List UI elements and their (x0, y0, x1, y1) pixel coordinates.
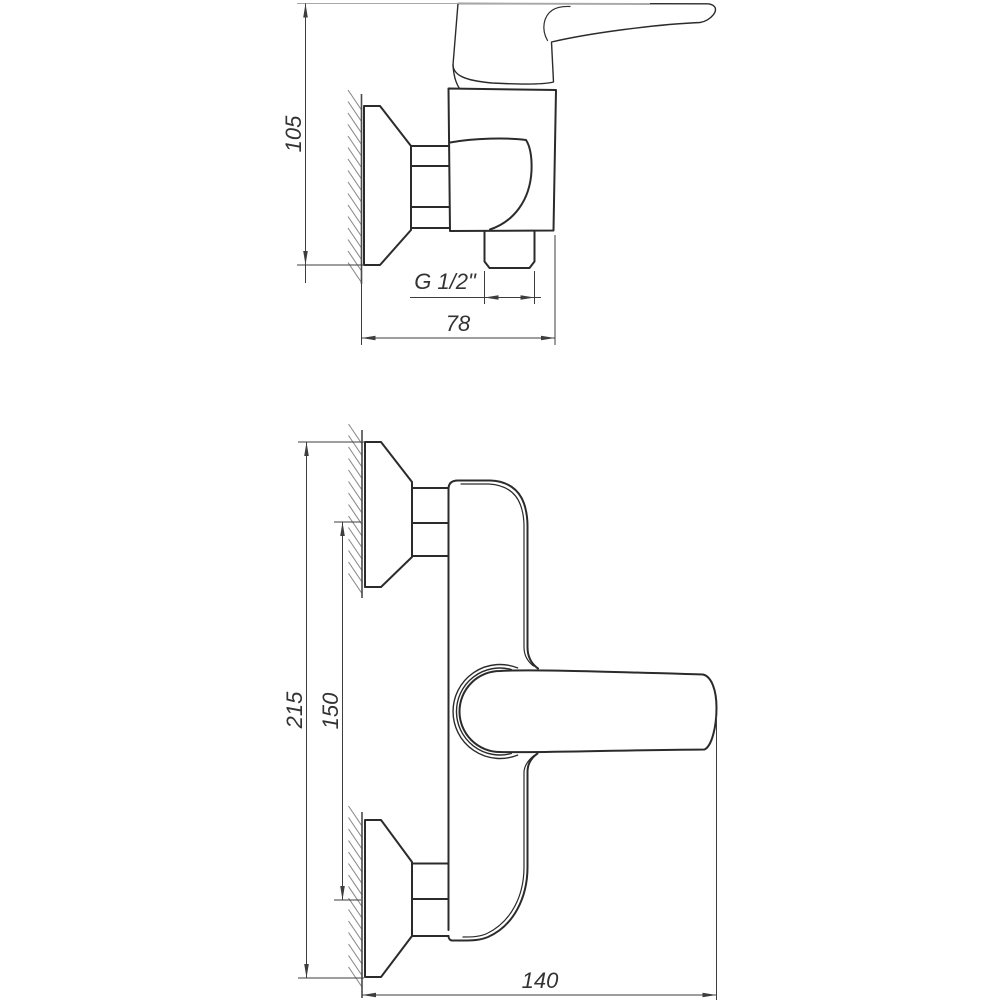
dim-label-thread: G 1/2" (414, 269, 477, 294)
dimension-thread: G 1/2" (410, 269, 541, 304)
lever-side (453, 4, 716, 89)
lever-curve-detail (544, 6, 570, 40)
cartridge-cover-side (450, 139, 532, 230)
arrow-up (340, 522, 345, 536)
faucet-technical-drawing: 105 G 1/2" 78 (0, 0, 1000, 1000)
wall-hatching (349, 424, 363, 594)
dim-label-78: 78 (446, 311, 471, 336)
body-contour-upper (461, 484, 534, 666)
dim-label-215: 215 (282, 691, 307, 729)
front-wall-top (349, 424, 363, 598)
side-wall (348, 90, 362, 284)
wall-hatching (348, 90, 362, 283)
arrow-up (304, 442, 309, 456)
handle-hub (453, 665, 518, 759)
arrow-left (362, 336, 376, 341)
wall-hatching (349, 806, 363, 987)
dimension-140: 140 (362, 716, 717, 1000)
ext-lines-thread (485, 271, 535, 304)
dim-label-105: 105 (281, 115, 306, 152)
escutcheon-side (364, 106, 411, 265)
pipe-union-front-top (412, 488, 449, 556)
front-view: 215 150 140 (282, 424, 717, 1000)
dim-label-150: 150 (318, 692, 343, 729)
front-wall-bottom (349, 806, 363, 998)
outlet-nozzle (485, 231, 535, 268)
escutcheon-front-top (365, 442, 412, 587)
arrow-right (541, 336, 555, 341)
dim-label-140: 140 (522, 968, 559, 993)
arrow-right (703, 993, 717, 998)
arrow-up (303, 4, 308, 18)
escutcheon-front-bottom (365, 820, 412, 977)
arrow-down (340, 886, 345, 900)
arrow-down (303, 251, 308, 265)
pipe-union-side (411, 146, 449, 228)
hub-ring-outer (453, 665, 518, 759)
lever-front (460, 670, 717, 752)
mixer-body-front (449, 481, 539, 941)
body-contour-lower (463, 756, 534, 938)
arrow-left (485, 295, 499, 300)
mixer-body-side (449, 89, 557, 232)
pipe-union-front-bottom (412, 864, 449, 937)
technical-drawing-page: 105 G 1/2" 78 (0, 0, 1000, 1000)
arrow-left (362, 993, 376, 998)
dimension-150: 150 (318, 522, 361, 900)
dimension-105: 105 (281, 4, 650, 284)
side-view: 105 G 1/2" 78 (281, 4, 716, 346)
lever-skirt-edge (453, 65, 460, 89)
arrow-down (304, 964, 309, 978)
arrow-right (521, 295, 535, 300)
lever-outline (453, 4, 716, 85)
